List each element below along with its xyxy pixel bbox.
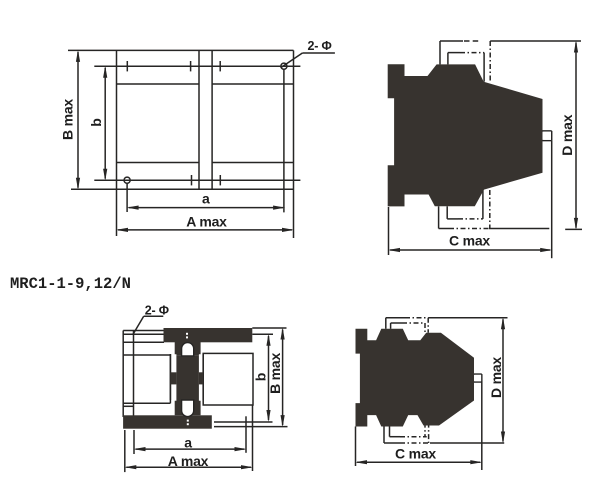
svg-text:MRC1-1-9,12/N: MRC1-1-9,12/N <box>10 275 131 293</box>
svg-text:2- Φ: 2- Φ <box>145 303 169 317</box>
svg-text:2- Φ: 2- Φ <box>308 39 332 53</box>
svg-text:a: a <box>184 435 192 451</box>
svg-text:C max: C max <box>395 445 436 461</box>
svg-text:a: a <box>202 191 210 207</box>
svg-text:b: b <box>88 118 104 126</box>
svg-text:b: b <box>252 373 268 381</box>
svg-text:A max: A max <box>168 453 209 469</box>
svg-text:B max: B max <box>59 99 75 140</box>
svg-text:D max: D max <box>559 114 575 155</box>
svg-text:B max: B max <box>267 352 283 393</box>
svg-text:A max: A max <box>186 214 227 230</box>
svg-text:C max: C max <box>449 232 490 248</box>
svg-text:D max: D max <box>488 357 504 398</box>
